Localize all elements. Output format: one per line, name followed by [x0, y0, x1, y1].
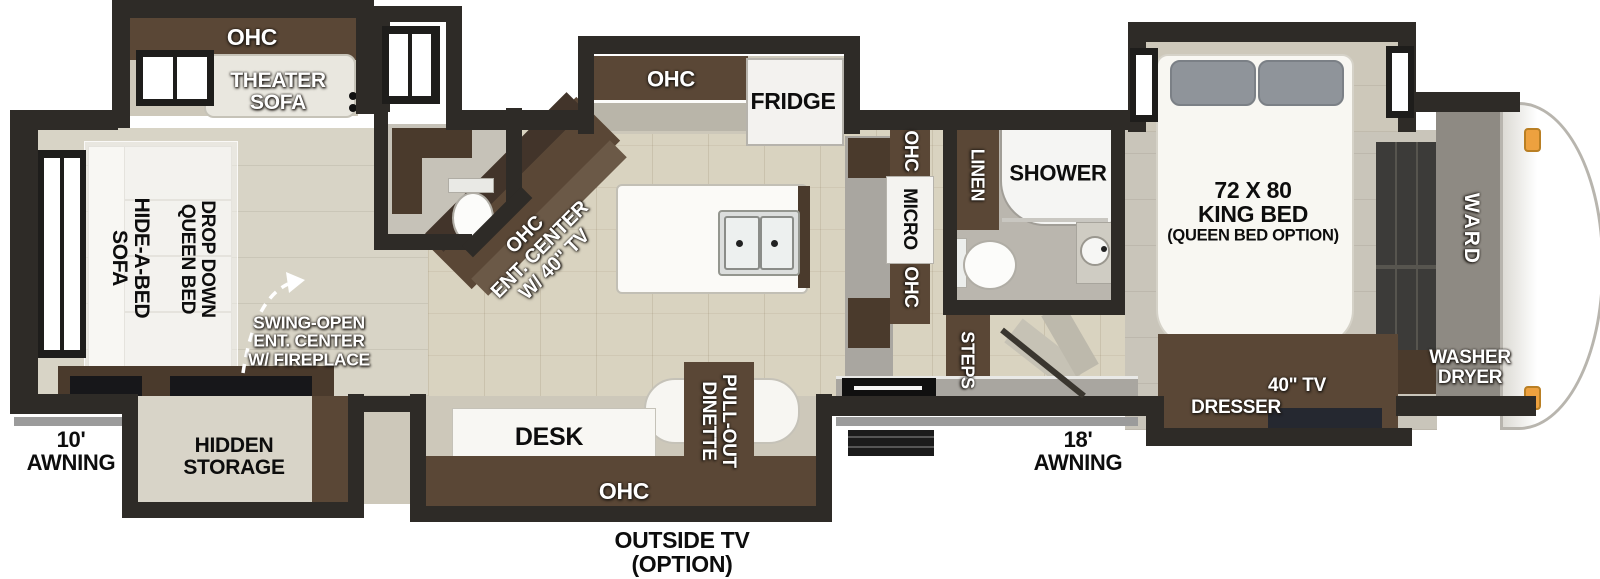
wall-bottom-living — [10, 394, 130, 414]
label-ohc-upper: OHC — [900, 130, 920, 171]
front-cap — [1500, 102, 1600, 430]
cooktop-stripe — [854, 386, 922, 390]
slideout-window-pane — [177, 57, 207, 99]
counter-cabinet — [848, 138, 890, 178]
wall-dresser-bottom — [1146, 428, 1412, 446]
counter-cabinet — [848, 298, 890, 348]
wall-bottom-front — [1396, 396, 1536, 416]
wall-storage-right — [348, 394, 364, 518]
label-ward: WARD — [1460, 193, 1482, 265]
wall-bed-slideout-top — [1128, 22, 1416, 42]
label-washer-dryer: WASHER DRYER — [1429, 348, 1511, 388]
label-hide-a-bed: HIDE-A-BED SOFA — [108, 198, 152, 319]
wall-bath-bottom — [943, 300, 1125, 315]
pillow — [1258, 60, 1344, 106]
wall-bath-right — [1111, 128, 1125, 315]
label-awning-rear: 10' AWNING — [27, 428, 116, 474]
wall-halfbath-left — [374, 108, 388, 250]
label-hidden-storage: HIDDEN STORAGE — [183, 435, 284, 479]
wall-dinette-slideout-left — [410, 394, 426, 522]
label-steps: STEPS — [958, 331, 977, 389]
bump-window-pane — [389, 34, 408, 96]
wall-kitchen-slideout-left — [578, 36, 594, 134]
label-40-tv: 40" TV — [1268, 376, 1326, 396]
rear-awning-bar — [14, 417, 128, 426]
passage-floor — [364, 412, 410, 504]
label-king-bed-option: (QUEEN BED OPTION) — [1167, 227, 1339, 244]
bedroom-window-pane — [1392, 53, 1408, 111]
wall-rear-slideout-top — [112, 0, 374, 18]
label-kitchen-ohc: OHC — [647, 67, 695, 90]
wall-rear — [10, 110, 38, 406]
label-dresser: DRESSER — [1191, 398, 1281, 418]
wall-kitchen-slideout-top — [578, 36, 860, 54]
wall-top-front — [1408, 92, 1520, 112]
wall-rear-slideout-right — [356, 0, 374, 114]
wall-storage-left — [122, 394, 138, 518]
label-ohc-lower: OHC — [900, 266, 920, 307]
wall-dinette-slideout-bottom — [410, 506, 832, 522]
label-desk-ohc: OHC — [599, 479, 649, 503]
rear-window-pane — [44, 158, 60, 350]
wall-bottom-center — [832, 396, 1152, 416]
bump-window-pane — [412, 34, 431, 96]
swing-tv-panel — [170, 376, 312, 396]
bedroom-tv — [1268, 408, 1382, 430]
wall-bump-right — [446, 6, 462, 112]
label-awning-front: 18' AWNING — [1034, 428, 1123, 474]
marker-light — [1524, 128, 1541, 152]
label-theater-sofa: THEATER SOFA — [230, 70, 326, 114]
half-bath-toilet-tank — [448, 178, 494, 193]
slideout-window-pane — [143, 57, 173, 99]
faucet-dot — [736, 240, 743, 247]
wall-top — [844, 110, 1144, 130]
wall-bath-left — [943, 128, 957, 315]
label-king-bed: 72 X 80 KING BED — [1198, 178, 1308, 226]
label-outside-tv: OUTSIDE TV (OPTION) — [614, 528, 749, 576]
wall-halfbath-bottom — [374, 234, 472, 250]
toilet-bowl — [963, 240, 1017, 290]
floorplan: OHC THEATER SOFA HIDE-A-BED SOFA DROP DO… — [0, 0, 1600, 579]
label-shower: SHOWER — [1009, 161, 1106, 184]
label-drop-down: DROP DOWN QUEEN BED — [177, 200, 217, 317]
label-fridge: FRIDGE — [750, 89, 835, 113]
label-linen: LINEN — [968, 149, 987, 202]
fireplace-panel — [70, 376, 142, 396]
wall-dinette-slideout-right — [816, 394, 832, 522]
front-awning-bar — [836, 417, 1138, 426]
bedroom-window-pane — [1136, 55, 1152, 115]
label-pull-out-dinette: PULL-OUT DINETTE — [698, 374, 738, 468]
pillow — [1170, 60, 1256, 106]
entry-steps-outside — [848, 430, 934, 456]
wall-top — [10, 110, 118, 130]
half-bath-vanity — [392, 128, 422, 214]
bath-faucet-dot — [1101, 246, 1107, 252]
faucet-dot — [771, 240, 778, 247]
label-rear-ohc: OHC — [227, 25, 277, 49]
storage-cabinet — [312, 396, 350, 502]
label-micro: MICRO — [899, 188, 919, 250]
wall-rear-slideout-left — [112, 0, 130, 128]
rear-window-pane — [64, 158, 80, 350]
label-swing-open: SWING-OPEN ENT. CENTER W/ FIREPLACE — [248, 313, 370, 368]
kitchen-counter-strip — [594, 100, 748, 131]
label-desk: DESK — [515, 424, 583, 450]
wall-storage-bottom — [122, 502, 364, 518]
